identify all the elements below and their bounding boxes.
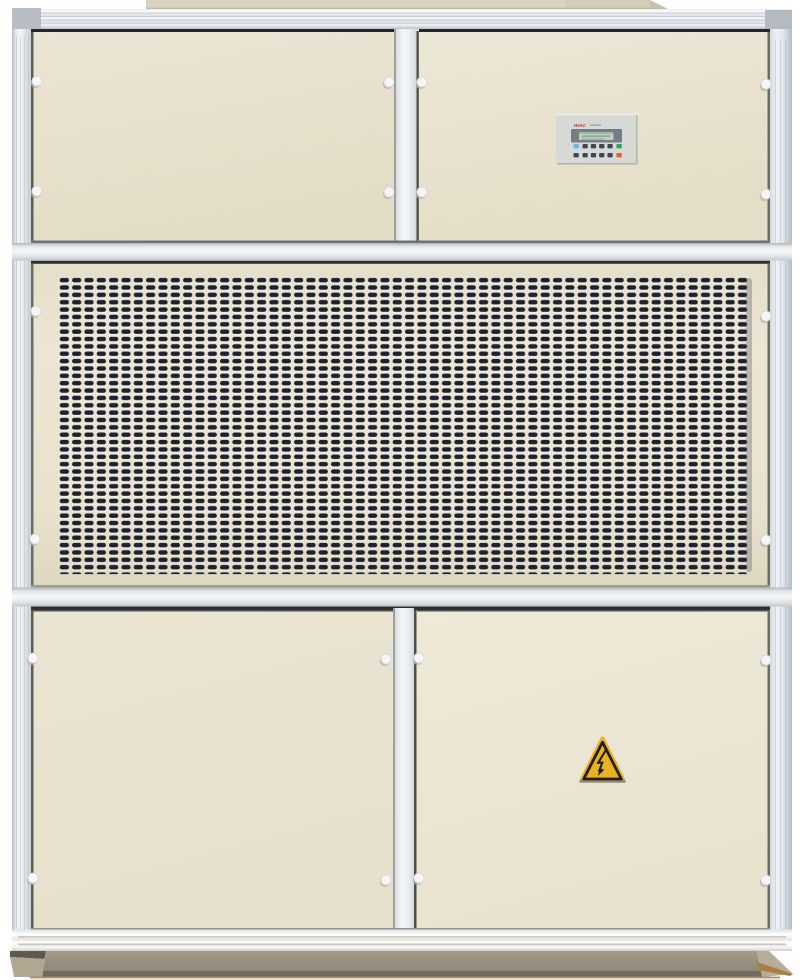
svg-text:HVAC: HVAC — [574, 123, 587, 128]
